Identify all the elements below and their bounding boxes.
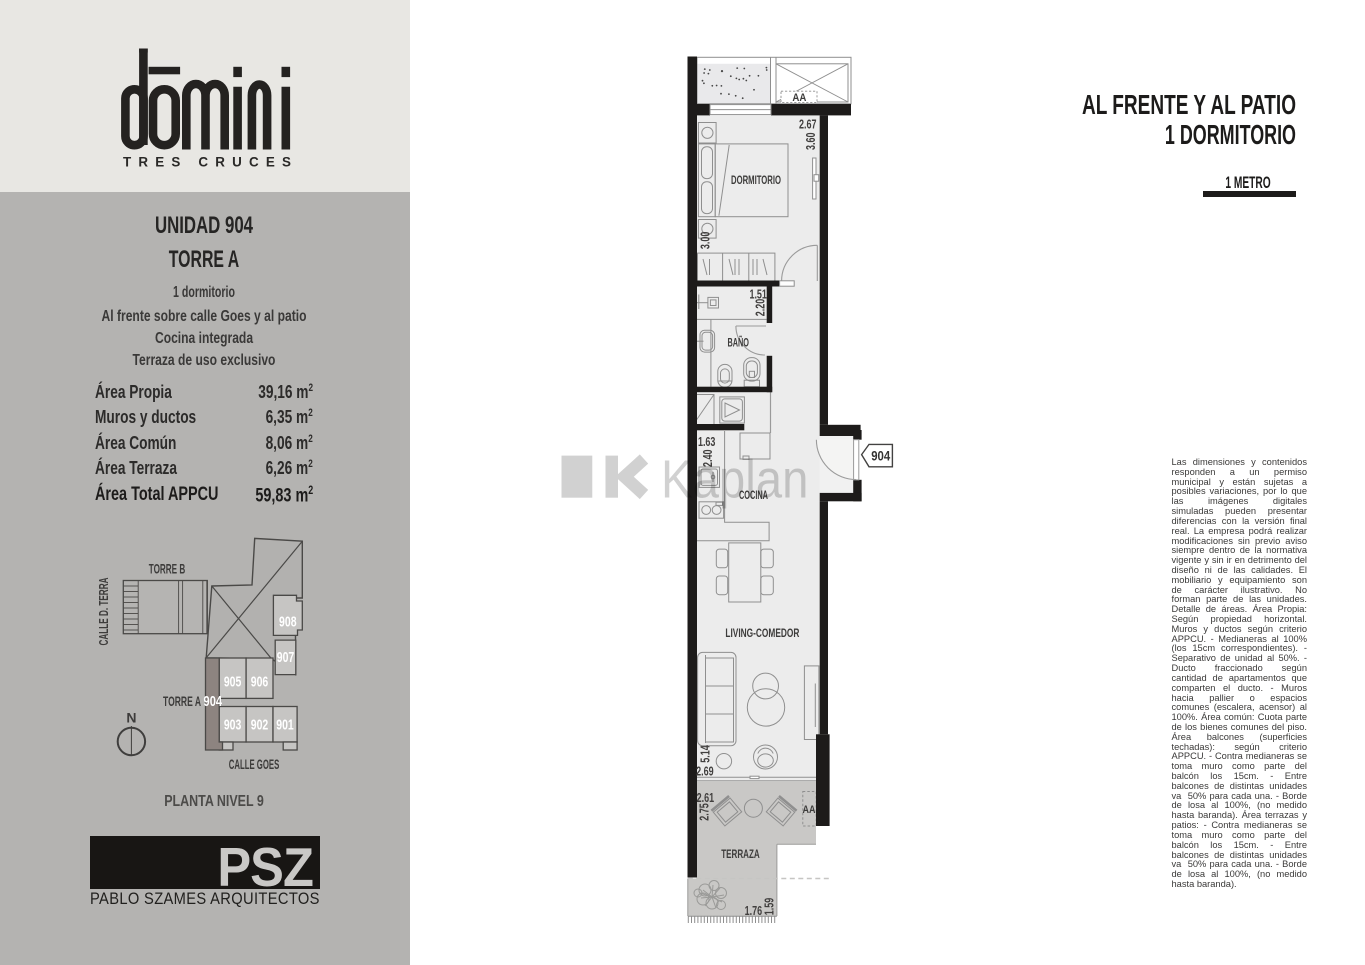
svg-text:904: 904 <box>871 448 890 463</box>
svg-text:904: 904 <box>204 693 223 710</box>
svg-text:AA: AA <box>792 92 806 104</box>
svg-text:3.00: 3.00 <box>698 232 712 250</box>
svg-text:1.63: 1.63 <box>698 435 716 449</box>
svg-text:TORRE B: TORRE B <box>149 561 186 577</box>
svg-text:907: 907 <box>277 649 295 666</box>
svg-text:906: 906 <box>251 674 269 691</box>
svg-text:908: 908 <box>279 613 297 630</box>
svg-text:TRES CRUCES: TRES CRUCES <box>123 155 298 170</box>
svg-text:2.20: 2.20 <box>753 299 767 317</box>
svg-text:TORRE A: TORRE A <box>163 693 201 709</box>
svg-text:3.60: 3.60 <box>804 133 818 151</box>
svg-text:N: N <box>126 710 136 726</box>
svg-text:903: 903 <box>224 717 242 734</box>
svg-text:1.59: 1.59 <box>763 898 777 916</box>
svg-text:CALLE D. TERRA: CALLE D. TERRA <box>96 577 111 645</box>
svg-text:AA: AA <box>803 804 816 816</box>
svg-text:TERRAZA: TERRAZA <box>721 849 760 861</box>
svg-text:2.61: 2.61 <box>697 791 715 805</box>
svg-text:1.76: 1.76 <box>745 904 763 918</box>
svg-text:CALLE GOES: CALLE GOES <box>229 756 280 772</box>
svg-text:2.75: 2.75 <box>697 803 711 821</box>
svg-text:905: 905 <box>224 674 242 691</box>
svg-text:901: 901 <box>276 717 294 734</box>
svg-text:Kaplan: Kaplan <box>661 450 809 510</box>
svg-text:902: 902 <box>251 717 269 734</box>
svg-text:5.14: 5.14 <box>698 745 712 763</box>
svg-text:2.69: 2.69 <box>696 765 714 779</box>
svg-text:DORMITORIO: DORMITORIO <box>731 175 781 187</box>
svg-text:BAÑO: BAÑO <box>727 336 749 349</box>
svg-text:LIVING-COMEDOR: LIVING-COMEDOR <box>725 628 799 640</box>
svg-text:2.67: 2.67 <box>799 118 817 132</box>
